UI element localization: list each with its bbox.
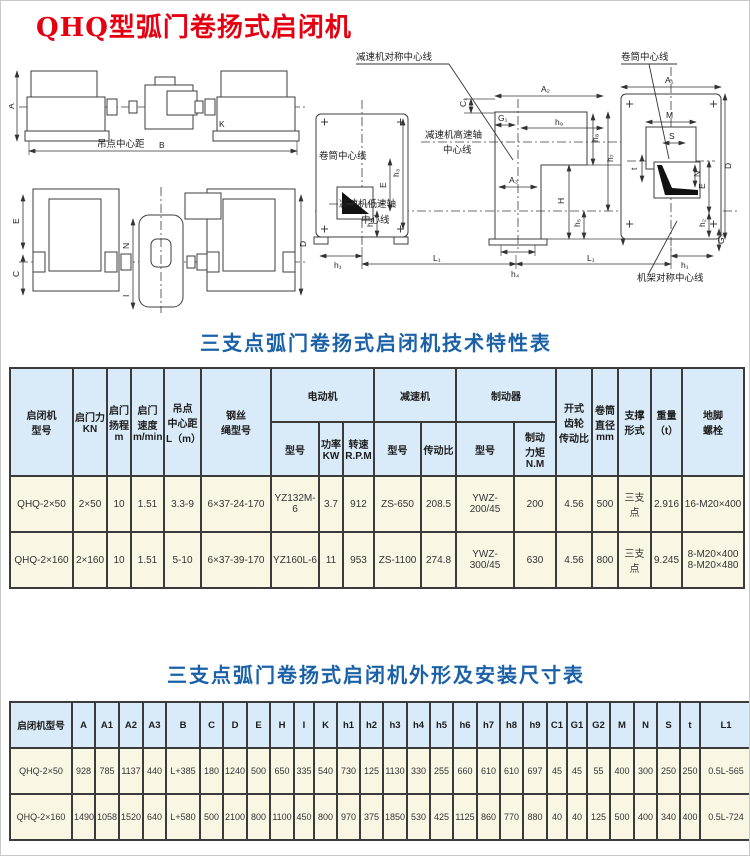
dim-label-a2: A₂ [541, 84, 550, 94]
table-cell: 2×160 [73, 532, 107, 588]
high-speed-shaft-label-2: 中心线 [443, 144, 472, 156]
dimensions-table: 启闭机型号AA1A2A3BCDEHIKh1h2h3h4h5h6h7h8h9C1G… [9, 701, 750, 841]
column-header: h2 [360, 702, 383, 748]
table-cell: 530 [407, 794, 430, 840]
dim-label-a: A [9, 103, 16, 109]
dim-label-s: S [669, 131, 675, 141]
col-header-anchor: 地脚 螺栓 [682, 368, 744, 476]
page-title: QHQ型弧门卷扬式启闭机 [36, 7, 352, 44]
table-cell: 8-M20×400 8-M20×480 [682, 532, 744, 588]
dim-label-k: K [219, 119, 225, 129]
col-header-open-gear: 开式 齿轮 传动比 [556, 368, 592, 476]
table-cell: 450 [294, 794, 314, 840]
column-header: S [657, 702, 680, 748]
table-cell: 630 [514, 532, 556, 588]
dim-label-h4: h₄ [511, 269, 520, 279]
table-cell: 400 [634, 794, 657, 840]
table-cell: 255 [430, 748, 453, 794]
table-cell: 785 [95, 748, 119, 794]
table-cell: 1240 [223, 748, 247, 794]
table-cell: 三支点 [618, 476, 651, 532]
col-header-brake-torque: 制动 力矩N.M [514, 422, 556, 476]
document-page: QHQ型弧门卷扬式启闭机 [0, 0, 750, 856]
col-header-model: 启闭机 型号 [10, 368, 73, 476]
table-cell: 860 [477, 794, 500, 840]
hoist-center-distance-label: 吊点中心距 [97, 138, 145, 150]
table-cell: 16-M20×400 [682, 476, 744, 532]
table-cell: 640 [143, 794, 166, 840]
col-header-brake-model: 型号 [456, 422, 514, 476]
table-row: QHQ-2×502×50101.513.3-96×37-24-170YZ132M… [10, 476, 744, 532]
table-cell: 800 [592, 532, 618, 588]
column-header: h8 [500, 702, 523, 748]
table-cell: 970 [337, 794, 360, 840]
table-cell: 500 [610, 794, 634, 840]
col-header-motor-model: 型号 [271, 422, 319, 476]
table-cell: ZS-1100 [374, 532, 421, 588]
dim-label-h5: h₅ [572, 219, 582, 227]
dim-label-h2-right: h₂ [697, 219, 707, 227]
table-cell: 250 [657, 748, 680, 794]
table-cell: 800 [314, 794, 337, 840]
table-cell: QHQ-2×160 [10, 532, 73, 588]
table-cell: 650 [270, 748, 294, 794]
table-cell: 400 [680, 794, 700, 840]
table-cell: YWZ-300/45 [456, 532, 514, 588]
table-cell: 928 [72, 748, 95, 794]
table-cell: ZS-650 [374, 476, 421, 532]
table-cell: 330 [407, 748, 430, 794]
table1-title: 三支点弧门卷扬式启闭机技术特性表 [1, 327, 750, 356]
table-cell: 730 [337, 748, 360, 794]
technical-characteristics-table: 启闭机 型号 启门力 KN 启门 扬程 m 启门 速度 m/min 吊点 中心距… [9, 367, 745, 589]
table-cell: 440 [143, 748, 166, 794]
dimension-drawing: 卷筒中心线 h₂ E h₃ h₁ L₁ L₁ h₁ [314, 51, 737, 284]
column-header: K [314, 702, 337, 748]
dim-label-h: H [556, 198, 566, 204]
col-header-lift: 启门 扬程 m [107, 368, 131, 476]
dim-label-h3: h₃ [391, 169, 401, 177]
column-header: H [270, 702, 294, 748]
drum-centerline-left-label: 卷筒中心线 [319, 150, 367, 162]
table-cell: 335 [294, 748, 314, 794]
dim-label-g1: G₁ [498, 113, 508, 123]
table-cell: 1.51 [131, 532, 164, 588]
table-cell: 1520 [119, 794, 143, 840]
table-cell: 200 [514, 476, 556, 532]
column-header: L1 [700, 702, 750, 748]
dim-label-c1: C₁ [458, 98, 468, 107]
table-cell: 770 [500, 794, 523, 840]
table-cell: 55 [587, 748, 610, 794]
table-cell: 125 [587, 794, 610, 840]
col-header-motor-speed: 转速 R.P.M [343, 422, 374, 476]
table-cell: 500 [592, 476, 618, 532]
table-cell: 660 [453, 748, 477, 794]
dim-label-e-plan: E [11, 218, 21, 224]
column-header: E [247, 702, 270, 748]
dim-label-g2: G₂ [716, 234, 726, 244]
table-cell: L+580 [166, 794, 200, 840]
col-group-reducer: 减速机 [374, 368, 456, 422]
dim-label-h9: h₉ [555, 117, 563, 127]
table-cell: 375 [360, 794, 383, 840]
column-header: h7 [477, 702, 500, 748]
table-cell: 11 [319, 532, 343, 588]
column-header: C [200, 702, 223, 748]
dim-label-n: N [692, 171, 702, 177]
dim-label-e-left: E [378, 182, 388, 188]
dim-label-a1: A₁ [665, 75, 674, 85]
col-header-weight: 重量 （t） [651, 368, 682, 476]
column-header: t [680, 702, 700, 748]
table-cell: 4.56 [556, 532, 592, 588]
table-cell: 2×50 [73, 476, 107, 532]
dim-label-l1-left: L₁ [433, 253, 441, 263]
table-cell: 1137 [119, 748, 143, 794]
table-cell: 1100 [270, 794, 294, 840]
table-cell: 三支点 [618, 532, 651, 588]
column-header: G1 [567, 702, 587, 748]
dim-label-h1-left: h₁ [334, 260, 342, 270]
table-cell: 2.916 [651, 476, 682, 532]
table-cell: 9.245 [651, 532, 682, 588]
low-speed-shaft-label-1: 减速机低速轴 [339, 198, 396, 210]
low-speed-shaft-label-2: 中心线 [361, 214, 390, 226]
dim-label-c-plan: C [11, 271, 21, 277]
table-cell: 1850 [383, 794, 407, 840]
table-cell: QHQ-2×50 [10, 748, 72, 794]
table-cell: 0.5L-724 [700, 794, 750, 840]
table-cell: 180 [200, 748, 223, 794]
table-cell: 4.56 [556, 476, 592, 532]
drum-centerline-top-label: 卷筒中心线 [621, 51, 669, 63]
column-header: G2 [587, 702, 610, 748]
col-header-speed: 启门 速度 m/min [131, 368, 164, 476]
dim-label-b: B [159, 140, 165, 150]
table-cell: 5-10 [164, 532, 201, 588]
dim-label-n-plan: N [121, 243, 131, 249]
column-header: M [610, 702, 634, 748]
col-header-force: 启门力 KN [73, 368, 107, 476]
table-cell: 6×37-39-170 [201, 532, 271, 588]
table-cell: 1490 [72, 794, 95, 840]
dim-label-i-plan: I [121, 295, 131, 297]
table-cell: YZ132M-6 [271, 476, 319, 532]
column-header: h4 [407, 702, 430, 748]
dim-label-d-plan: D [298, 241, 308, 247]
column-header: h6 [453, 702, 477, 748]
table-cell: 6×37-24-170 [201, 476, 271, 532]
column-header: I [294, 702, 314, 748]
column-header: B [166, 702, 200, 748]
plan-view-drawing: E C N I D [11, 187, 308, 313]
table-cell: QHQ-2×50 [10, 476, 73, 532]
table-cell: 697 [523, 748, 547, 794]
table-cell: 3.3-9 [164, 476, 201, 532]
table-cell: YZ160L-6 [271, 532, 319, 588]
column-header: h9 [523, 702, 547, 748]
table-row: QHQ-2×1602×160101.515-106×37-39-170YZ160… [10, 532, 744, 588]
column-header: C1 [547, 702, 567, 748]
column-header: A1 [95, 702, 119, 748]
reducer-symmetry-centerline-label: 减速机对称中心线 [356, 51, 433, 63]
table-cell: 800 [247, 794, 270, 840]
high-speed-shaft-label-1: 减速机高速轴 [425, 129, 482, 141]
dim-label-d: D [723, 163, 733, 169]
table-cell: QHQ-2×160 [10, 794, 72, 840]
table-cell: 45 [547, 748, 567, 794]
column-header: h3 [383, 702, 407, 748]
column-header: N [634, 702, 657, 748]
table-cell: 953 [343, 532, 374, 588]
column-header: 启闭机型号 [10, 702, 72, 748]
col-group-motor: 电动机 [271, 368, 374, 422]
table-cell: 1058 [95, 794, 119, 840]
table-cell: 340 [657, 794, 680, 840]
table-cell: 500 [200, 794, 223, 840]
dim-label-h8: h₈ [590, 133, 600, 142]
table2-title: 三支点弧门卷扬式启闭机外形及安装尺寸表 [1, 659, 750, 688]
column-header: h1 [337, 702, 360, 748]
table-cell: 208.5 [421, 476, 456, 532]
table-row: QHQ-2×160149010581520640L+58050021008001… [10, 794, 750, 840]
table-cell: 10 [107, 476, 131, 532]
dim-label-m: M [666, 110, 673, 120]
col-header-reducer-model: 型号 [374, 422, 421, 476]
table-cell: 0.5L-565 [700, 748, 750, 794]
table-cell: 500 [247, 748, 270, 794]
table-cell: 300 [634, 748, 657, 794]
dim-label-h1-right: h₁ [681, 260, 689, 270]
table-cell: L+385 [166, 748, 200, 794]
col-header-center-dist: 吊点 中心距 L（m） [164, 368, 201, 476]
technical-drawings: A K 吊点中心距 B E [9, 47, 743, 313]
front-view-drawing: A K 吊点中心距 B [9, 71, 305, 155]
column-header: D [223, 702, 247, 748]
column-header: A [72, 702, 95, 748]
dim-label-l1-right: L₁ [587, 253, 595, 263]
table-cell: 400 [610, 748, 634, 794]
column-header: A3 [143, 702, 166, 748]
column-header: A2 [119, 702, 143, 748]
table-cell: 540 [314, 748, 337, 794]
frame-symmetry-centerline-label: 机架对称中心线 [637, 272, 704, 284]
dim-label-h7: h₇ [605, 154, 615, 162]
table-cell: 912 [343, 476, 374, 532]
table-cell: 1130 [383, 748, 407, 794]
table-row: QHQ-2×509287851137440L+38518012405006503… [10, 748, 750, 794]
table-cell: 274.8 [421, 532, 456, 588]
table-cell: 1.51 [131, 476, 164, 532]
col-header-drum-dia: 卷筒 直径 mm [592, 368, 618, 476]
table-cell: 40 [547, 794, 567, 840]
table-cell: YWZ-200/45 [456, 476, 514, 532]
table-cell: 880 [523, 794, 547, 840]
table-cell: 125 [360, 748, 383, 794]
col-header-rope: 钢丝 绳型号 [201, 368, 271, 476]
col-header-reducer-ratio: 传动比 [421, 422, 456, 476]
table-cell: 40 [567, 794, 587, 840]
table-cell: 2100 [223, 794, 247, 840]
table-cell: 45 [567, 748, 587, 794]
table-cell: 1125 [453, 794, 477, 840]
table-cell: 610 [477, 748, 500, 794]
dim-label-e-right: E [697, 183, 707, 189]
table-cell: 425 [430, 794, 453, 840]
table-cell: 610 [500, 748, 523, 794]
col-header-support: 支撑 形式 [618, 368, 651, 476]
column-header: h5 [430, 702, 453, 748]
dim-label-a3: A₃ [509, 175, 518, 185]
table-cell: 250 [680, 748, 700, 794]
table-cell: 10 [107, 532, 131, 588]
col-group-brake: 制动器 [456, 368, 556, 422]
table-cell: 3.7 [319, 476, 343, 532]
col-header-motor-power: 功率 KW [319, 422, 343, 476]
